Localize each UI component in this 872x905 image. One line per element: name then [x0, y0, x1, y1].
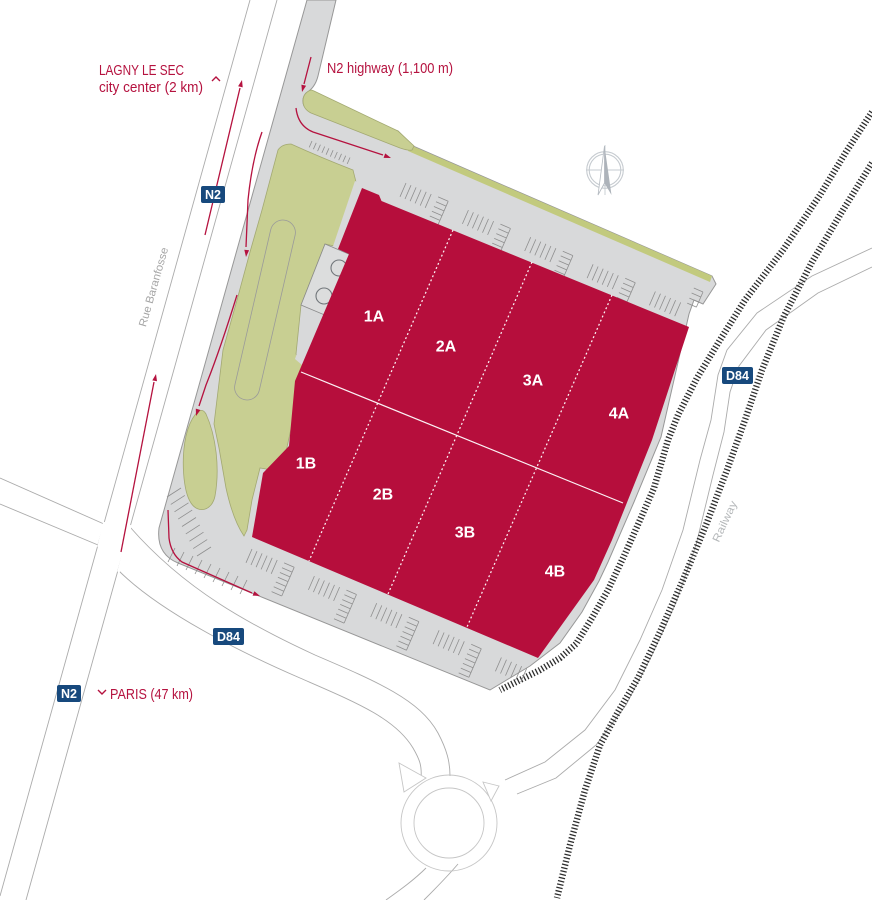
- svg-text:PARIS (47 km): PARIS (47 km): [110, 686, 193, 703]
- svg-text:1B: 1B: [296, 456, 316, 473]
- svg-text:3A: 3A: [523, 373, 544, 390]
- svg-text:LAGNY LE SEC: LAGNY LE SEC: [99, 62, 184, 79]
- svg-text:N2: N2: [205, 188, 221, 202]
- svg-text:D84: D84: [726, 369, 749, 383]
- svg-text:2B: 2B: [373, 487, 393, 504]
- svg-text:D84: D84: [217, 630, 240, 644]
- svg-text:2A: 2A: [436, 339, 457, 356]
- svg-text:N2 highway (1,100 m): N2 highway (1,100 m): [327, 60, 453, 77]
- svg-text:3B: 3B: [455, 525, 475, 542]
- svg-text:city center (2 km): city center (2 km): [99, 79, 203, 96]
- svg-text:1A: 1A: [364, 309, 385, 326]
- svg-text:4B: 4B: [545, 564, 565, 581]
- svg-text:N2: N2: [61, 687, 77, 701]
- svg-text:4A: 4A: [609, 406, 630, 423]
